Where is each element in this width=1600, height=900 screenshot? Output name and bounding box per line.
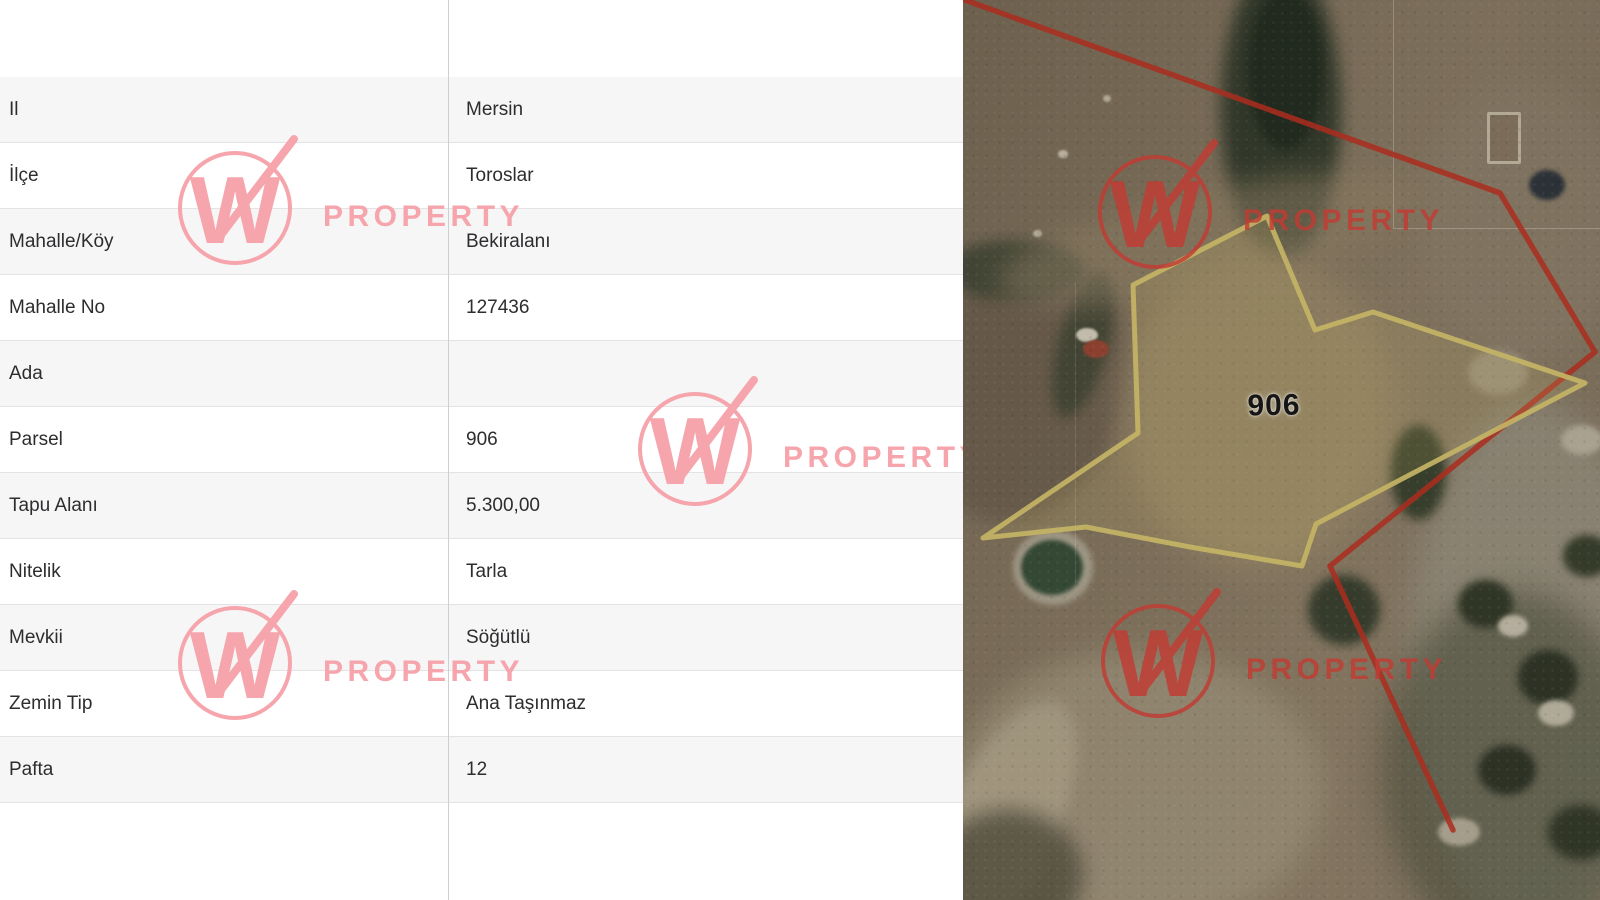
row-value: 127436 (448, 297, 963, 319)
table-row-nitelik: Nitelik Tarla (0, 539, 963, 605)
table-row-mevkii: Mevkii Söğütlü (0, 605, 963, 671)
row-label: Ada (0, 363, 448, 385)
row-value: Tarla (448, 561, 963, 583)
satellite-map[interactable]: 906 W PROPERTY W PROPERTY (963, 0, 1600, 900)
row-value: 12 (448, 759, 963, 781)
row-label: Parsel (0, 429, 448, 451)
property-detail-page: Il Mersin İlçe Toroslar Mahalle/Köy Beki… (0, 0, 1600, 900)
row-label: İlçe (0, 165, 448, 187)
table-row-il: Il Mersin (0, 77, 963, 143)
cadastral-overlay (963, 0, 1600, 900)
table-row-mahalle-no: Mahalle No 127436 (0, 275, 963, 341)
row-label: Pafta (0, 759, 448, 781)
row-value: Söğütlü (448, 627, 963, 649)
table-row-tapu-alani: Tapu Alanı 5.300,00 (0, 473, 963, 539)
row-label: Mahalle/Köy (0, 231, 448, 253)
parcel-number-label: 906 (1238, 388, 1311, 423)
table-row-pafta: Pafta 12 (0, 737, 963, 803)
row-label: Zemin Tip (0, 693, 448, 715)
table-row-parsel: Parsel 906 (0, 407, 963, 473)
table-row-ada: Ada (0, 341, 963, 407)
table-row-mahalle-koy: Mahalle/Köy Bekiralanı (0, 209, 963, 275)
parcel-info-table: Il Mersin İlçe Toroslar Mahalle/Köy Beki… (0, 0, 963, 900)
table-header-empty (0, 0, 963, 77)
row-value: Bekiralanı (448, 231, 963, 253)
row-value: Mersin (448, 99, 963, 121)
row-label: Tapu Alanı (0, 495, 448, 517)
row-value: Ana Taşınmaz (448, 693, 963, 715)
row-label: Mevkii (0, 627, 448, 649)
table-column-divider (448, 0, 449, 900)
row-value: Toroslar (448, 165, 963, 187)
row-value: 906 (448, 429, 963, 451)
row-label: Il (0, 99, 448, 121)
row-value: 5.300,00 (448, 495, 963, 517)
row-label: Mahalle No (0, 297, 448, 319)
table-row-zemin-tip: Zemin Tip Ana Taşınmaz (0, 671, 963, 737)
row-label: Nitelik (0, 561, 448, 583)
table-row-ilce: İlçe Toroslar (0, 143, 963, 209)
